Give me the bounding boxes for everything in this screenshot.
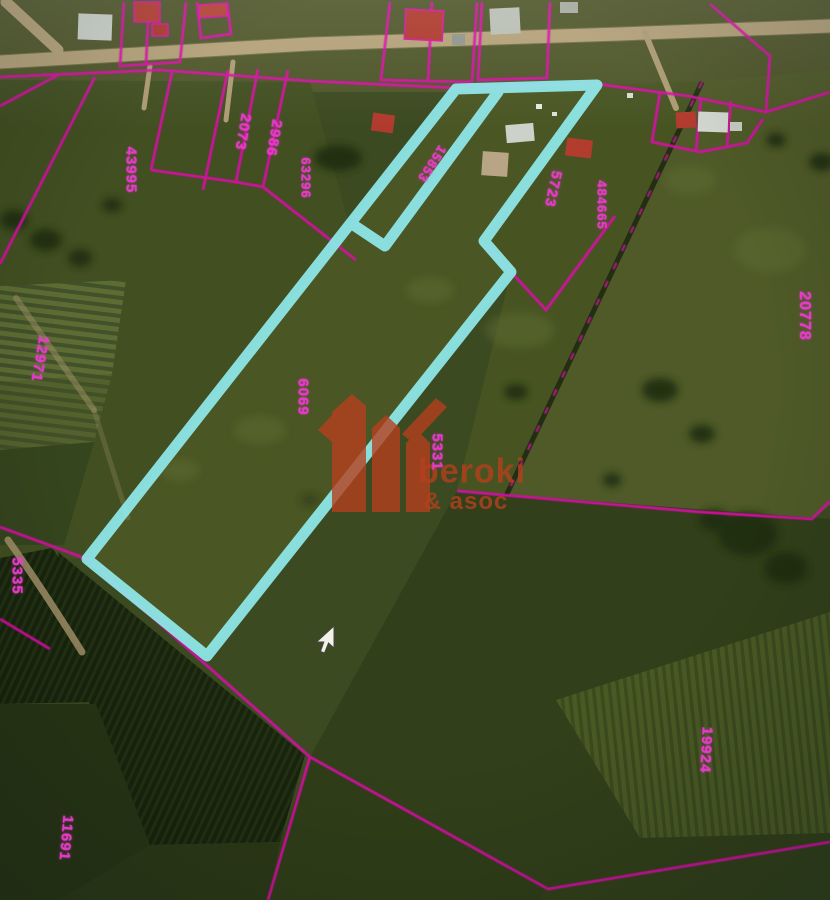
watermark-suffix-text: & asoc [424, 488, 509, 516]
parcel-label-63296: 63296 [299, 157, 314, 198]
map-viewport[interactable]: 43995 2073 2986 63296 15853 5723 484665 … [0, 0, 830, 900]
parcel-label-6069: 6069 [295, 378, 312, 415]
parcel-label-5331: 5331 [429, 433, 446, 470]
parcel-label-19924: 19924 [696, 726, 715, 774]
parcel-label-20778: 20778 [795, 291, 813, 341]
parcel-label-5335: 5335 [9, 557, 26, 594]
parcel-label-484665: 484665 [595, 180, 610, 229]
parcel-label-43995: 43995 [123, 147, 140, 194]
